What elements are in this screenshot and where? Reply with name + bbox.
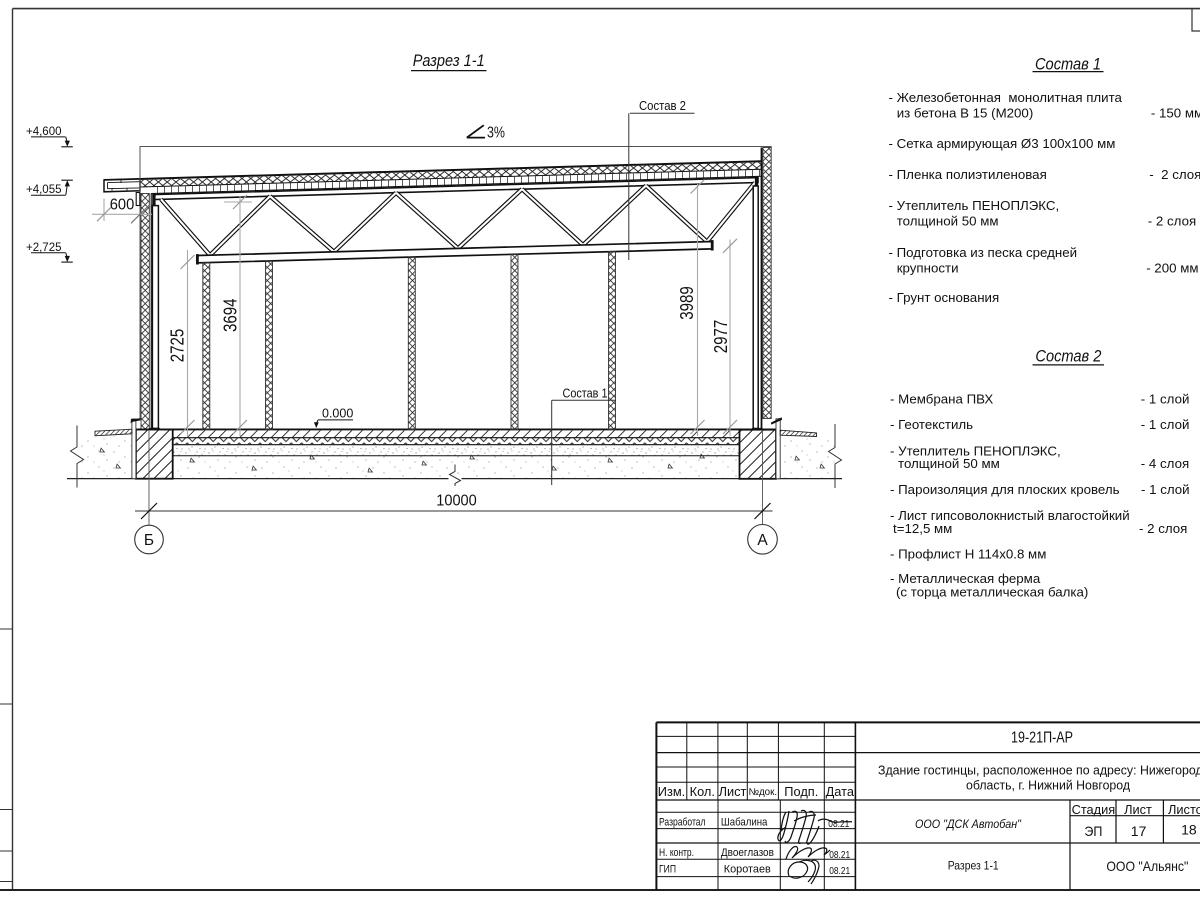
svg-text:крупности: крупности — [897, 260, 959, 275]
svg-text:t=12,5 мм: t=12,5 мм — [893, 521, 952, 536]
svg-text:- Мембрана ПВХ: - Мембрана ПВХ — [890, 392, 993, 407]
svg-text:Дата: Дата — [826, 784, 855, 799]
svg-text:- 4 слоя: - 4 слоя — [1141, 456, 1189, 471]
svg-text:Коротаев: Коротаев — [724, 863, 771, 875]
svg-text:08.21: 08.21 — [829, 866, 850, 877]
svg-text:из бетона В 15 (М200): из бетона В 15 (М200) — [897, 106, 1034, 121]
svg-text:17: 17 — [1131, 823, 1147, 839]
svg-text:ГИП: ГИП — [659, 863, 676, 875]
svg-text:А: А — [757, 532, 768, 549]
svg-text:- 150 мм: - 150 мм — [1151, 106, 1200, 121]
svg-text:+4,055: +4,055 — [26, 184, 62, 196]
svg-text:№док.: №док. — [748, 787, 777, 798]
svg-text:- 2 слоя: - 2 слоя — [1148, 214, 1196, 229]
svg-text:Стадия: Стадия — [1072, 802, 1116, 817]
svg-text:2977: 2977 — [710, 320, 731, 354]
svg-text:ЭП: ЭП — [1084, 823, 1102, 839]
svg-text:Изм.: Изм. — [658, 784, 685, 799]
svg-text:толщиной 50 мм: толщиной 50 мм — [898, 456, 1000, 471]
svg-text:3694: 3694 — [219, 299, 240, 333]
svg-text:- Пленка полиэтиленовая: - Пленка полиэтиленовая — [889, 167, 1047, 182]
svg-text:Состав 1: Состав 1 — [563, 386, 608, 400]
svg-text:- Пароизоляция для плоских кро: - Пароизоляция для плоских кровель — [890, 482, 1120, 497]
svg-text:- 200 мм: - 200 мм — [1146, 260, 1198, 275]
svg-text:Разрез 1-1: Разрез 1-1 — [948, 859, 999, 873]
svg-text:- Профлист Н 114х0.8 мм: - Профлист Н 114х0.8 мм — [890, 547, 1046, 562]
svg-text:2725: 2725 — [166, 329, 187, 363]
svg-text:Разработал: Разработал — [659, 816, 706, 828]
svg-text:0.000: 0.000 — [322, 406, 353, 420]
svg-text:ООО "Альянс": ООО "Альянс" — [1106, 858, 1188, 874]
svg-text:19-21П-АР: 19-21П-АР — [1011, 730, 1073, 747]
svg-text:Лист: Лист — [719, 784, 747, 799]
svg-text:- Железобетонная монолитная п: - Железобетонная монолитная плита — [889, 90, 1123, 105]
svg-text:600: 600 — [110, 197, 135, 214]
svg-text:- 1 слой: - 1 слой — [1141, 417, 1190, 432]
svg-text:08.21: 08.21 — [828, 819, 849, 830]
svg-text:область, г. Нижний Новгород: область, г. Нижний Новгород — [966, 777, 1130, 792]
svg-text:- Геотекстиль: - Геотекстиль — [890, 417, 973, 432]
svg-text:3989: 3989 — [676, 286, 697, 320]
svg-text:10000: 10000 — [436, 493, 477, 510]
svg-text:Разрез 1-1: Разрез 1-1 — [413, 52, 485, 70]
svg-text:Подп.: Подп. — [784, 784, 818, 799]
svg-text:Здание гостинцы, расположенное: Здание гостинцы, расположенное по адресу… — [878, 762, 1200, 777]
svg-text:Двоеглазов: Двоеглазов — [721, 847, 774, 859]
svg-text:Состав 1: Состав 1 — [1035, 54, 1101, 73]
svg-text:18: 18 — [1181, 822, 1197, 838]
svg-text:3%: 3% — [487, 125, 505, 142]
svg-text:+4,600: +4,600 — [26, 126, 62, 138]
svg-text:Лист: Лист — [1124, 802, 1152, 817]
svg-text:(с торца металлическая балка): (с торца металлическая балка) — [896, 585, 1088, 600]
svg-text:толщиной 50 мм: толщиной 50 мм — [897, 214, 999, 229]
svg-text:ООО "ДСК Автобан": ООО "ДСК Автобан" — [915, 817, 1022, 831]
svg-text:Б: Б — [144, 532, 154, 549]
svg-text:Н. контр.: Н. контр. — [659, 847, 694, 859]
svg-text:Кол.: Кол. — [690, 784, 715, 799]
svg-text:- Утеплитель ПЕНОПЛЭКС,: - Утеплитель ПЕНОПЛЭКС, — [889, 198, 1060, 213]
svg-text:- Сетка армирующая Ø3 100х100: - Сетка армирующая Ø3 100х100 мм — [889, 136, 1116, 151]
svg-text:- 1 слой: - 1 слой — [1141, 392, 1190, 407]
svg-text:08.21: 08.21 — [829, 850, 850, 861]
svg-text:Листов: Листов — [1168, 802, 1200, 817]
svg-text:Состав 2: Состав 2 — [639, 99, 686, 113]
svg-text:Состав 2: Состав 2 — [1035, 347, 1101, 366]
svg-text:Шабалина: Шабалина — [721, 816, 768, 828]
svg-text:+2,725: +2,725 — [26, 242, 62, 254]
svg-text:- 2 слоя: - 2 слоя — [1149, 167, 1200, 182]
svg-text:- Грунт основания: - Грунт основания — [889, 290, 1000, 305]
svg-text:- Подготовка из песка средней: - Подготовка из песка средней — [889, 245, 1078, 260]
svg-text:- 2 слоя: - 2 слоя — [1139, 521, 1187, 536]
svg-text:- 1 слой: - 1 слой — [1141, 482, 1190, 497]
